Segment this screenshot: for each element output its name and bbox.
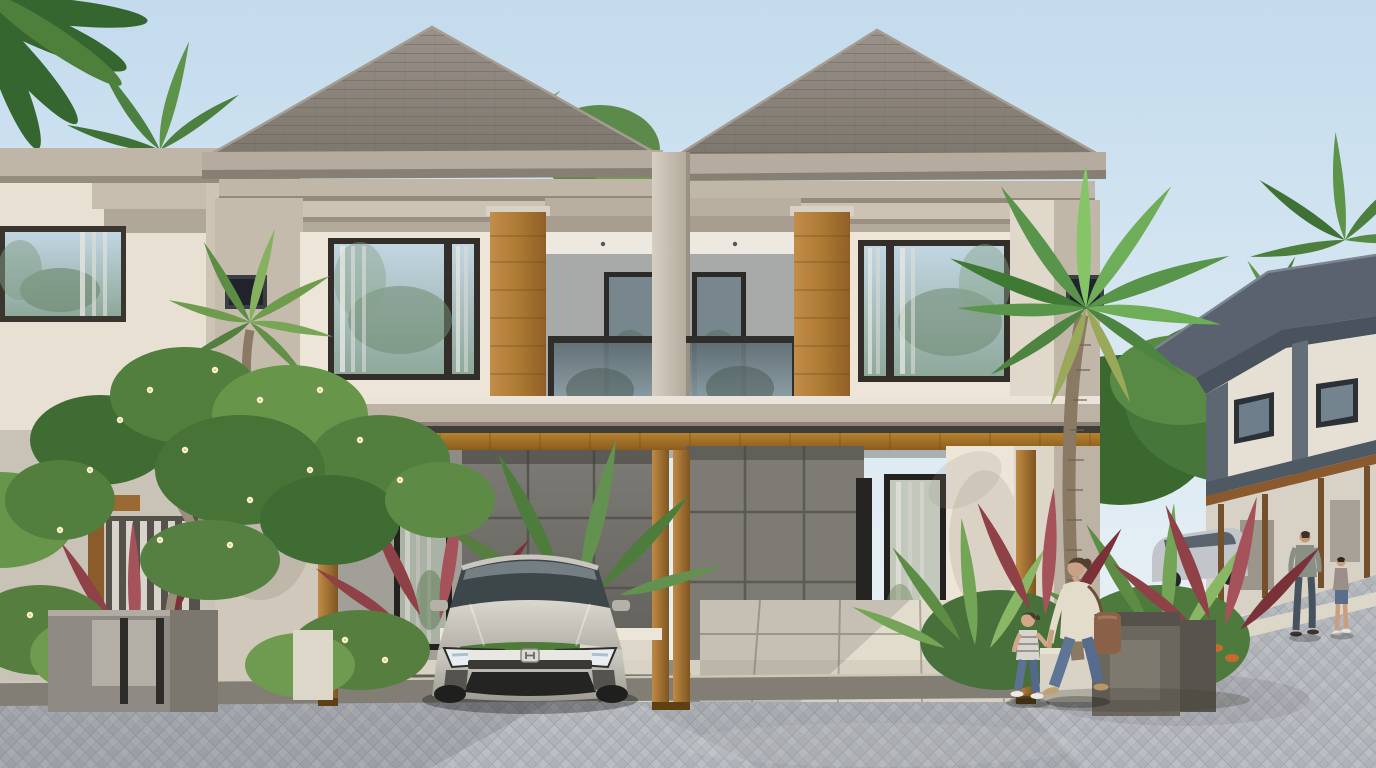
wood-accent-panel-right xyxy=(790,206,854,418)
wood-accent-panel-left xyxy=(486,206,550,418)
balcony-left xyxy=(546,232,662,416)
balcony-right xyxy=(686,232,800,416)
rendered-scene: Photorealistic architectural rendering o… xyxy=(0,0,1376,768)
upper-window-left xyxy=(328,238,480,380)
center-divider-column xyxy=(652,152,690,424)
car-mirror-left xyxy=(430,600,448,611)
car-mirror-right xyxy=(612,600,630,611)
child-jeans xyxy=(1018,660,1023,690)
honda-badge xyxy=(521,649,539,662)
scene-canvas xyxy=(0,0,1376,768)
left-house-window xyxy=(0,226,126,322)
car-lower-intake xyxy=(464,672,596,696)
